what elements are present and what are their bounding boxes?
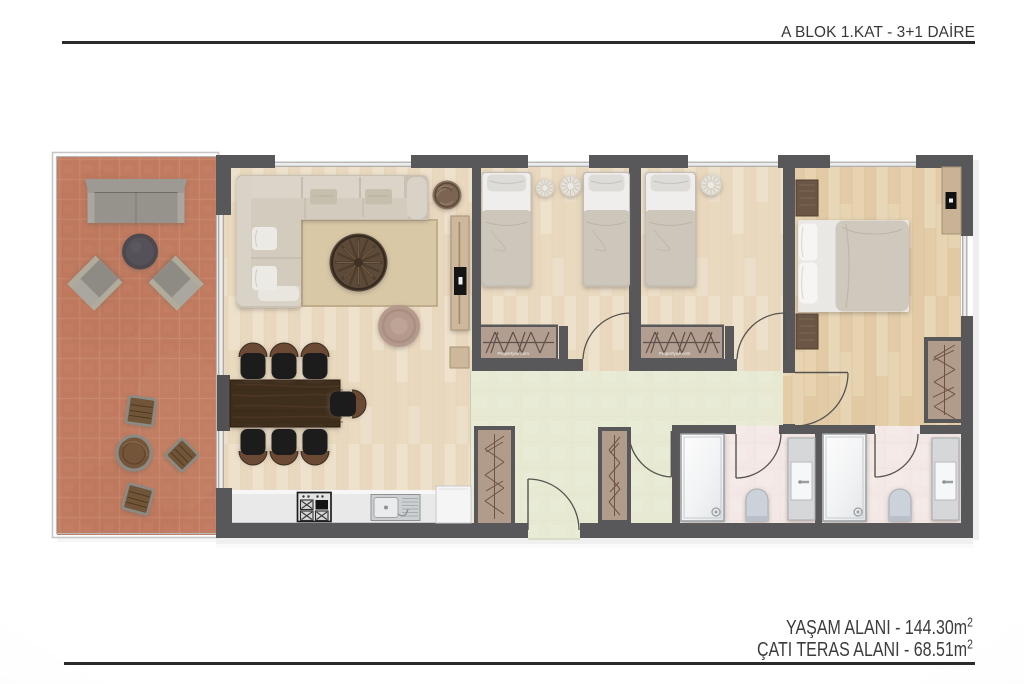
svg-text:Propertyse com: Propertyse com (659, 351, 691, 356)
svg-text:Propertyse com: Propertyse com (498, 351, 530, 356)
